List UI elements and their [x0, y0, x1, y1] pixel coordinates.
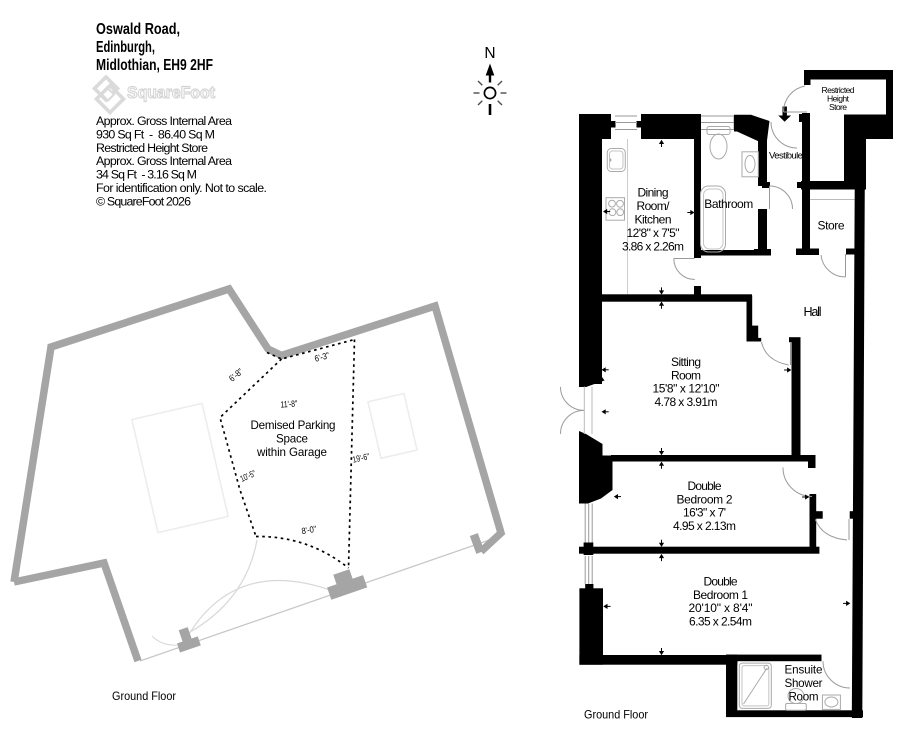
svg-text:Vestibule: Vestibule	[769, 151, 803, 162]
svg-text:11'-8": 11'-8"	[280, 398, 298, 409]
svg-text:12'8" x 7'5": 12'8" x 7'5"	[627, 226, 680, 240]
svg-text:Approx. Gross Internal Area: Approx. Gross Internal Area	[96, 114, 232, 128]
svg-text:Midlothian, EH9 2HF: Midlothian, EH9 2HF	[96, 57, 213, 74]
svg-text:Oswald Road,: Oswald Road,	[96, 21, 180, 38]
svg-text:Ground Floor: Ground Floor	[584, 708, 648, 722]
svg-text:© SquareFoot 2026: © SquareFoot 2026	[96, 194, 191, 208]
svg-text:3.86 x 2.26m: 3.86 x 2.26m	[622, 240, 684, 254]
svg-text:Room: Room	[671, 369, 701, 383]
svg-text:Kitchen: Kitchen	[635, 213, 672, 227]
svg-text:Ground Floor: Ground Floor	[112, 689, 176, 703]
svg-text:Bedroom 1: Bedroom 1	[693, 588, 748, 602]
svg-text:Shower: Shower	[785, 677, 823, 690]
svg-text:Bathroom: Bathroom	[704, 197, 753, 211]
svg-text:Double: Double	[704, 575, 738, 589]
svg-text:within Garage: within Garage	[256, 446, 327, 459]
svg-text:Hall: Hall	[804, 305, 822, 319]
svg-text:Space: Space	[276, 433, 308, 446]
svg-text:Ensuite: Ensuite	[785, 664, 823, 677]
svg-text:Restricted Height Store: Restricted Height Store	[96, 141, 208, 155]
svg-text:Demised Parking: Demised Parking	[251, 419, 336, 432]
svg-text:For identification only. Not t: For identification only. Not to scale.	[96, 181, 267, 195]
svg-text:6.35 x 2.54m: 6.35 x 2.54m	[689, 614, 752, 628]
svg-text:930 Sq Ft - 86.40 Sq M: 930 Sq Ft - 86.40 Sq M	[96, 127, 215, 141]
svg-text:Store: Store	[818, 219, 845, 233]
svg-text:20'10" x 8'4": 20'10" x 8'4"	[689, 601, 753, 615]
svg-text:Bedroom 2: Bedroom 2	[677, 493, 733, 507]
svg-text:Room: Room	[789, 691, 819, 704]
svg-text:Room/: Room/	[637, 199, 671, 213]
svg-text:34 Sq Ft - 3.16 Sq M: 34 Sq Ft - 3.16 Sq M	[96, 168, 197, 182]
svg-text:SquareFoot: SquareFoot	[127, 83, 215, 102]
svg-text:Approx. Gross Internal Area: Approx. Gross Internal Area	[96, 154, 232, 168]
svg-text:Sitting: Sitting	[671, 355, 701, 369]
svg-text:Dining: Dining	[638, 186, 669, 200]
svg-text:Edinburgh,: Edinburgh,	[96, 39, 155, 56]
svg-text:N: N	[484, 45, 495, 62]
svg-text:4.78 x 3.91m: 4.78 x 3.91m	[655, 395, 718, 409]
svg-text:15'8" x 12'10": 15'8" x 12'10"	[653, 382, 720, 396]
svg-text:4.95 x 2.13m: 4.95 x 2.13m	[673, 519, 736, 533]
svg-text:16'3" x 7': 16'3" x 7'	[683, 506, 726, 520]
svg-text:Store: Store	[829, 102, 847, 112]
svg-text:Double: Double	[688, 479, 722, 493]
